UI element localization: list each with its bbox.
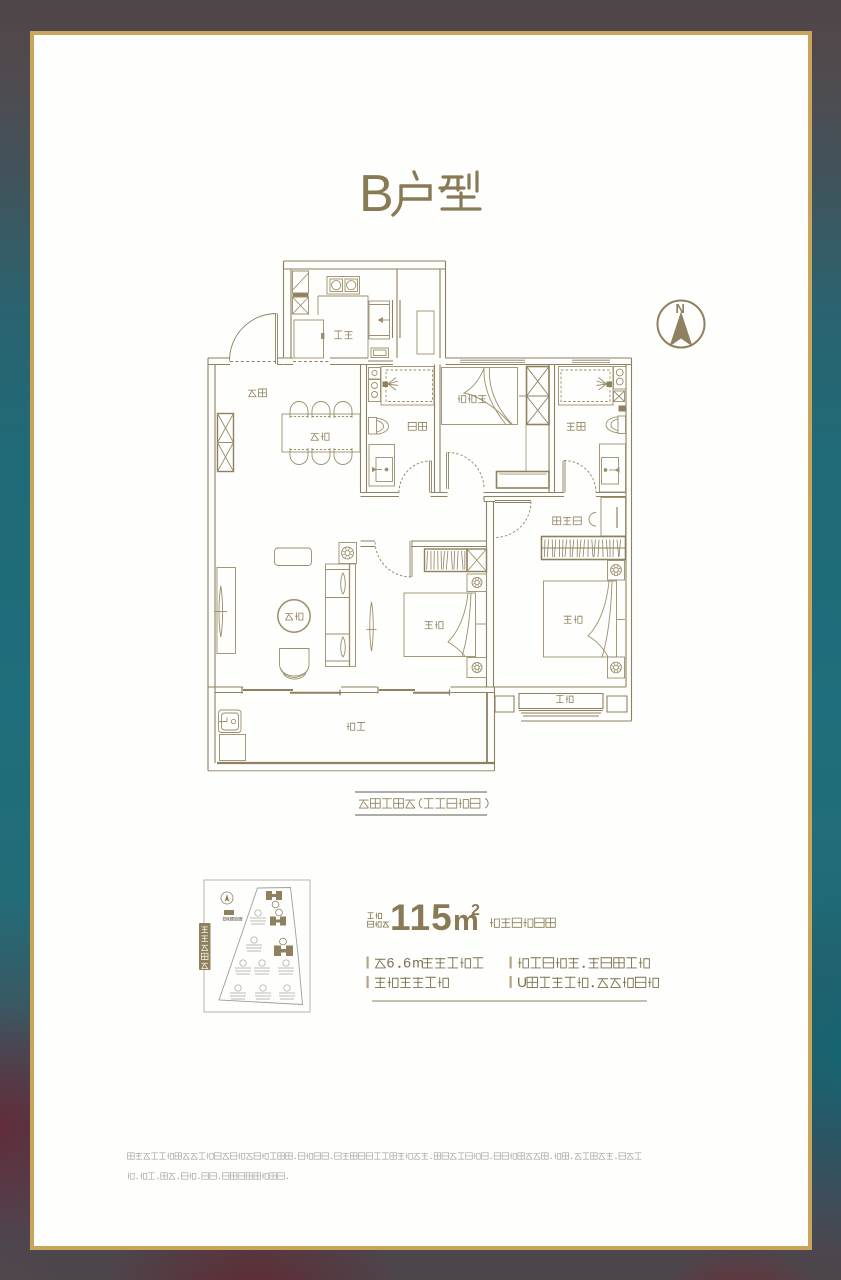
svg-text:N: N [676,301,685,316]
svg-text:U: U [517,974,527,990]
svg-text:B: B [359,165,394,223]
svg-text:2: 2 [471,902,480,919]
svg-text:6: 6 [387,954,395,970]
svg-text:6: 6 [403,954,411,970]
svg-text:115: 115 [390,897,453,938]
svg-text:m: m [412,954,424,970]
